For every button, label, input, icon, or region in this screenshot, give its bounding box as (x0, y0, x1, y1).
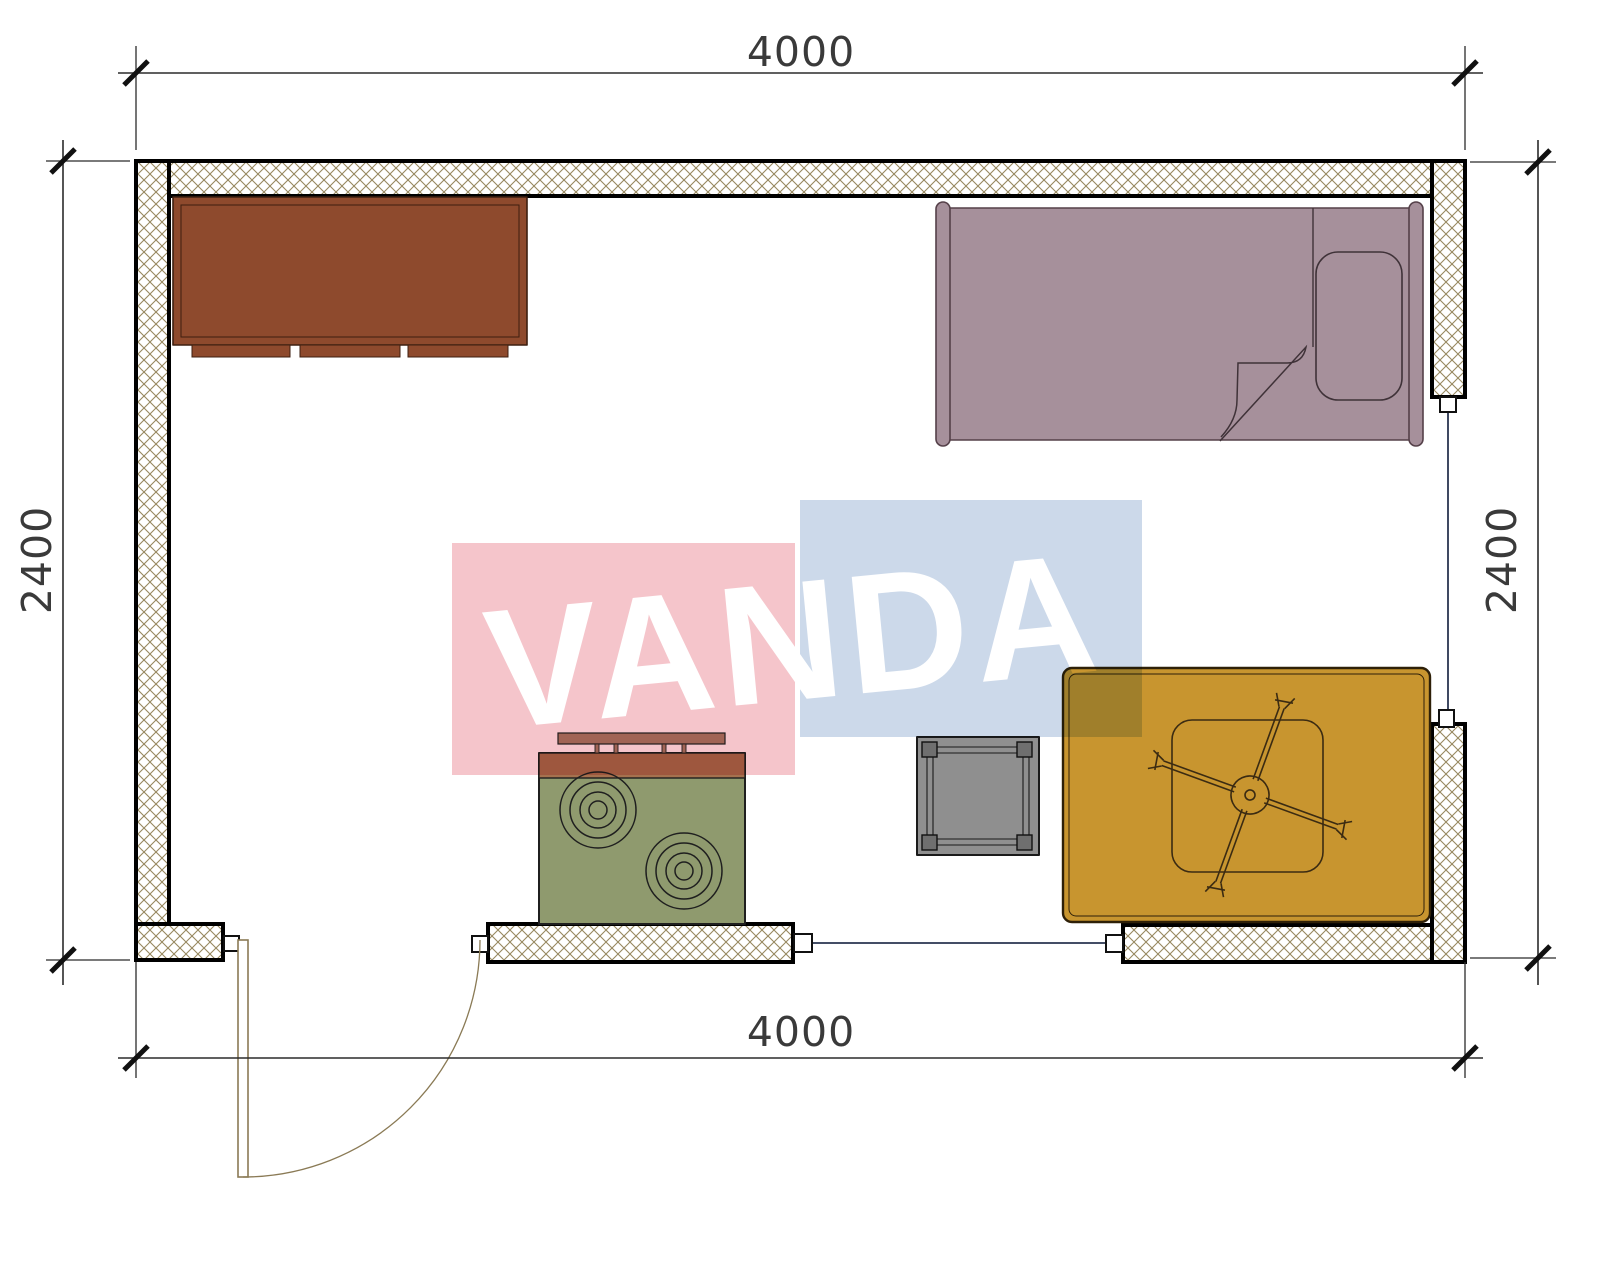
watermark: VANDA (0, 0, 1600, 1280)
watermark-blue-square (800, 500, 1142, 737)
watermark-squares (452, 500, 1142, 775)
watermark-pink-square (452, 543, 795, 775)
floor-plan-canvas: 4000 4000 2400 (0, 0, 1600, 1280)
